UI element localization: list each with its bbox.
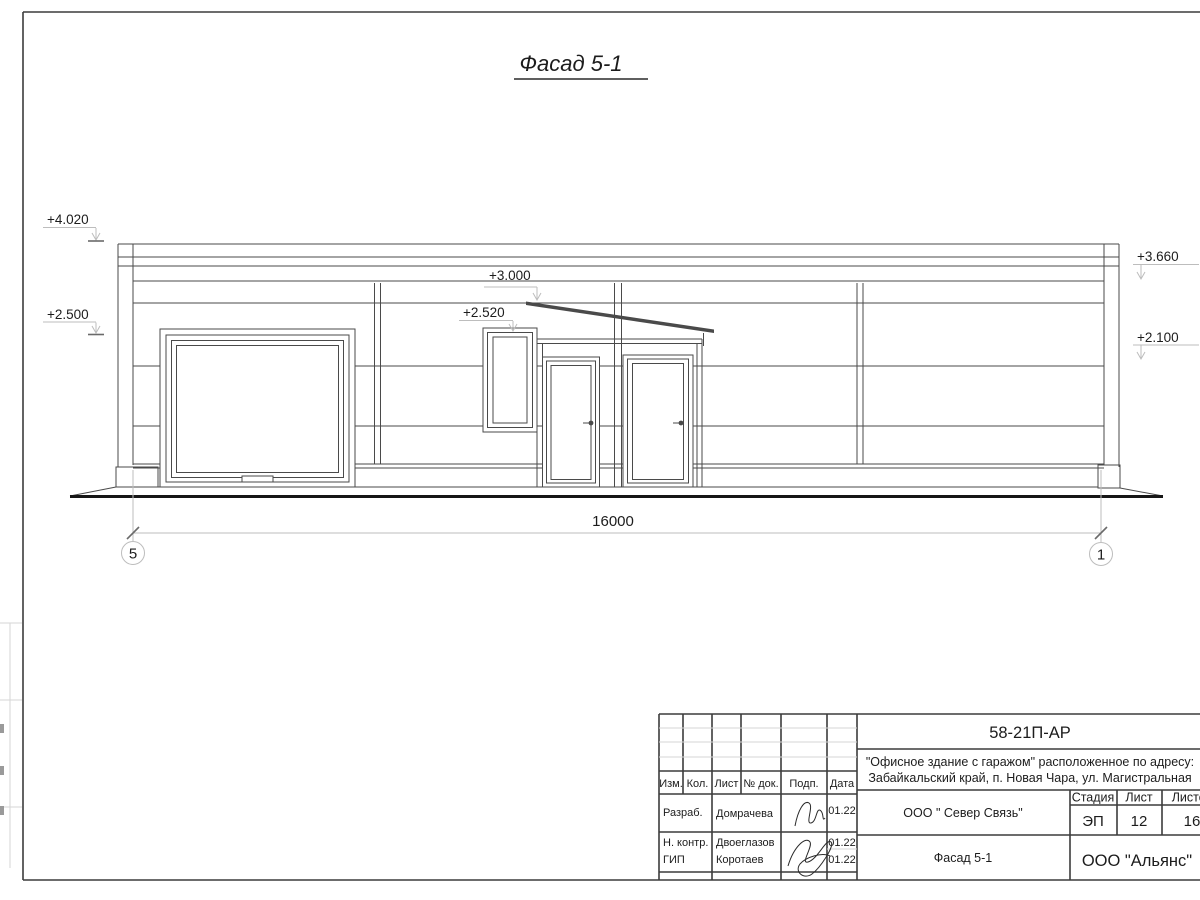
facade-building: [70, 244, 1163, 497]
clipped-text-mark: [0, 724, 4, 733]
elevation-mark-2500: +2.500: [43, 307, 104, 335]
sheets-total: 16: [1184, 813, 1200, 830]
door-right: [623, 355, 693, 487]
view-title: Фасад 5-1: [514, 51, 648, 79]
title-block: Изм. Кол. Лист № док. Подп. Дата Разраб.…: [659, 714, 1200, 880]
svg-text:Двоеглазов: Двоеглазов: [716, 837, 775, 849]
grid-bubble-1: 1: [1090, 543, 1113, 566]
wall-posts: [375, 283, 864, 487]
svg-text:Разраб.: Разраб.: [663, 807, 703, 819]
svg-text:01.22: 01.22: [828, 854, 856, 866]
garage-door-handle: [242, 476, 273, 482]
signature-developer: [795, 802, 825, 826]
project-address-line2: Забайкальский край, п. Новая Чара, ул. М…: [868, 771, 1191, 785]
svg-text:01.22: 01.22: [828, 805, 856, 817]
elevation-mark-2520: +2.520: [459, 305, 517, 331]
clipped-text-mark: [0, 806, 4, 815]
svg-text:№ док.: № док.: [743, 778, 778, 790]
signature-control: [788, 840, 832, 876]
grid-bubble-5: 5: [122, 542, 145, 565]
svg-text:Дата: Дата: [830, 778, 855, 790]
svg-text:Листов: Листов: [1172, 791, 1200, 805]
svg-text:Домрачева: Домрачева: [716, 808, 774, 820]
stage-value: ЭП: [1082, 813, 1104, 830]
customer-org: ООО " Север Связь": [903, 806, 1022, 820]
ground: [70, 487, 1163, 497]
project-address-line1: "Офисное здание с гаражом" расположенное…: [866, 755, 1194, 769]
svg-text:Лист: Лист: [1125, 791, 1152, 805]
window: [483, 328, 537, 432]
svg-text:Кол.: Кол.: [687, 778, 709, 790]
svg-text:Н. контр.: Н. контр.: [663, 837, 708, 849]
elevation-mark-3660: +3.660: [1133, 249, 1199, 279]
facade-drawing-canvas: Фасад 5-1: [0, 0, 1200, 900]
svg-text:+3.660: +3.660: [1137, 249, 1179, 264]
svg-text:Лист: Лист: [715, 778, 739, 790]
svg-text:Коротаев: Коротаев: [716, 854, 764, 866]
elevation-mark-4020: +4.020: [43, 212, 104, 241]
entrance-vestibule: [537, 339, 702, 487]
drawing-sheet: Фасад 5-1: [0, 0, 1200, 900]
svg-text:+2.100: +2.100: [1137, 330, 1179, 345]
svg-text:Подп.: Подп.: [789, 778, 818, 790]
view-title-text: Фасад 5-1: [519, 51, 622, 76]
project-code: 58-21П-АР: [989, 724, 1071, 742]
svg-text:+4.020: +4.020: [47, 212, 89, 227]
elevation-mark-3000: +3.000: [484, 268, 541, 300]
sheet-number: 12: [1131, 813, 1148, 830]
svg-text:ГИП: ГИП: [663, 854, 685, 866]
svg-text:1: 1: [1097, 547, 1105, 564]
design-company: ООО "Альянс": [1082, 852, 1192, 870]
clipped-text-mark: [0, 766, 4, 775]
svg-text:5: 5: [129, 546, 137, 563]
door-left: [543, 357, 600, 487]
svg-text:+2.500: +2.500: [47, 307, 89, 322]
left-edge-table-fragment: [0, 623, 22, 868]
view-name-cell: Фасад 5-1: [934, 851, 993, 865]
svg-text:+3.000: +3.000: [489, 268, 531, 283]
svg-text:Изм.: Изм.: [659, 778, 683, 790]
svg-text:01.22: 01.22: [828, 837, 856, 849]
svg-text:Стадия: Стадия: [1072, 791, 1115, 805]
title-block-column-headers: Изм. Кол. Лист № док. Подп. Дата: [659, 778, 855, 790]
garage-door: [160, 329, 355, 487]
elevation-mark-2100: +2.100: [1133, 330, 1199, 359]
overall-dimension: 16000: [592, 513, 634, 530]
svg-text:+2.520: +2.520: [463, 305, 505, 320]
